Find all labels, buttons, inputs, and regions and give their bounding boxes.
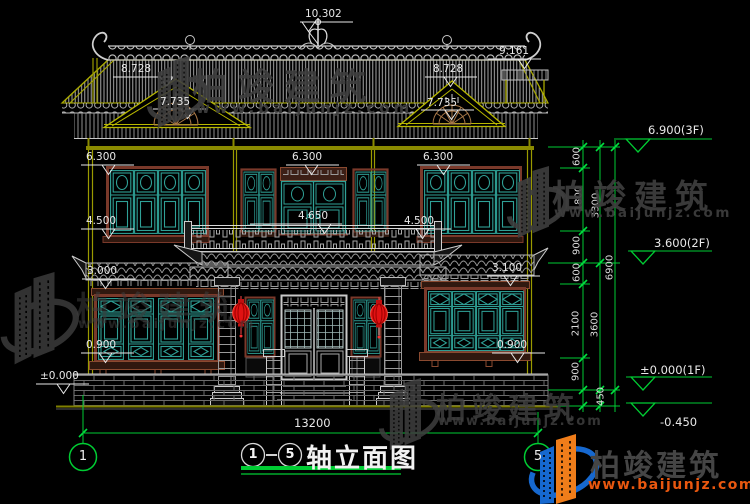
cad-elevation-screenshot: 10.302 9.161 8.728 7.735 8.728 7.735 6.3…	[0, 0, 750, 504]
dim-600-b: 600	[572, 253, 583, 293]
dim-450: 450	[596, 377, 607, 417]
level-ridge-right: 9.161	[499, 46, 529, 58]
level-gable-left-fan: 7.735	[160, 97, 190, 109]
level-right-2f: 3.600(2F)	[654, 237, 710, 250]
main-door-1f	[282, 296, 347, 380]
brand-logo-url: www.baijunjz.com	[588, 477, 750, 493]
level-1f-right: 3.100	[492, 263, 522, 275]
balcony-rail	[185, 222, 442, 252]
title-axis-start: 1	[246, 447, 260, 462]
watermark-url-top: www.baijunjz.com	[196, 99, 413, 117]
level-sill1-left: 0.900	[86, 340, 116, 352]
watermark-url-bottom: www.baijunjz.com	[438, 414, 603, 429]
level-2f-right: 6.300	[423, 152, 453, 164]
dim-3600: 3600	[590, 305, 601, 345]
level-right-1f: ±0.000(1F)	[640, 364, 705, 377]
level-sill2-left: 4.500	[86, 216, 116, 228]
level-2f-center: 6.300	[292, 152, 322, 164]
dim-overall-width: 13200	[294, 417, 331, 430]
level-1f-left: 3.000	[87, 266, 117, 278]
level-roof-top: 10.302	[305, 9, 342, 21]
window-2f-d	[352, 170, 389, 238]
level-gable-left-ridge: 8.728	[121, 64, 151, 76]
level-2f-left: 6.300	[86, 152, 116, 164]
axis-label-1: 1	[75, 449, 91, 464]
level-sill1-right: 0.900	[497, 340, 527, 352]
level-ground-left: ±0.000	[40, 371, 79, 383]
window-2f-b	[240, 170, 277, 238]
ridge-curl-left	[93, 33, 108, 60]
watermark-logo-left	[0, 272, 83, 364]
drawing-title: 轴立面图	[306, 438, 418, 475]
level-sill2-right: 4.500	[404, 216, 434, 228]
title-axis-end: 5	[283, 447, 297, 462]
level-right-3f: 6.900(3F)	[648, 124, 704, 137]
level-gable-right-ridge: 8.728	[433, 64, 463, 76]
level-balcony: 4.650	[298, 211, 328, 223]
level-gable-right-fan: 7.735	[427, 98, 457, 110]
watermark-url-left: www.baijunjz.com	[78, 316, 256, 332]
axis-label-5: 5	[530, 449, 546, 464]
level-right-base: -0.450	[660, 416, 697, 429]
dim-2100: 2100	[571, 304, 582, 344]
dim-6900: 6900	[605, 248, 616, 288]
window-1f-right	[420, 282, 531, 367]
watermark-url-right: www.baijunjz.com	[554, 205, 732, 221]
